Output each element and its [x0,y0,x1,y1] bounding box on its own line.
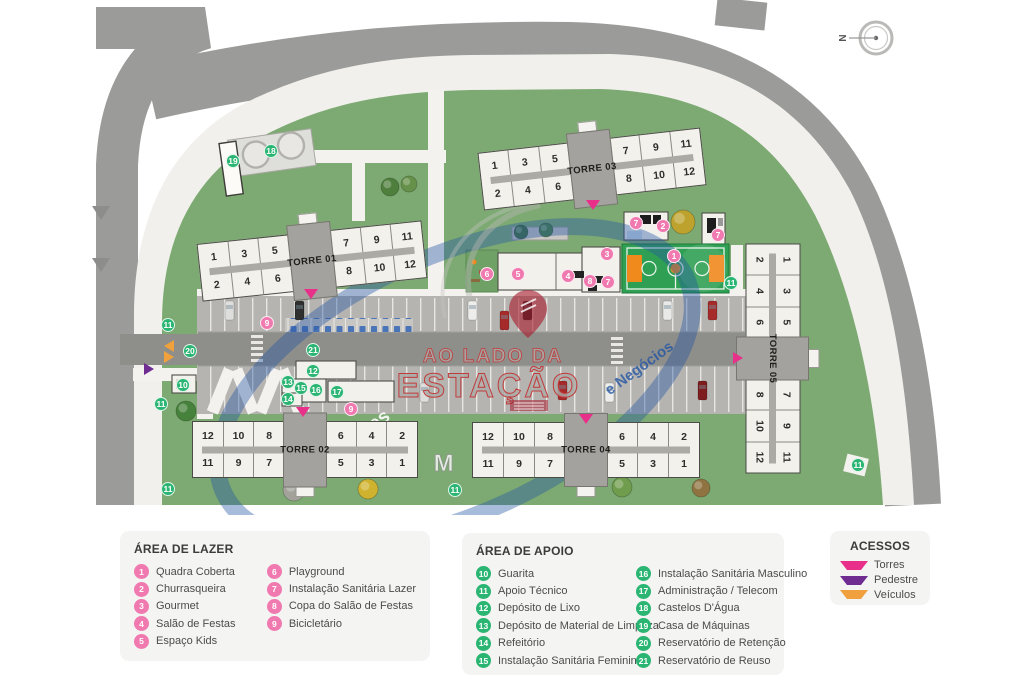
legend-item-label: Playground [289,566,345,578]
legend-item-label: Castelos D'Água [658,602,740,614]
legend-badge-7: 7 [267,582,282,597]
legend-item-label: Bicicletário [289,618,342,630]
legend-badge-14: 14 [476,636,491,651]
torres-triangle-icon [840,561,868,570]
legend-card-area-de-lazer: ÁREA DE LAZER 1Quadra Coberta2Churrasque… [120,531,430,661]
sports-court [622,244,729,293]
legend-item-label: Gourmet [156,600,199,612]
legend-badge-6: 6 [267,564,282,579]
legend-item-label: Salão de Festas [156,618,236,630]
legend-title-acessos: ACESSOS [840,539,920,553]
legend-badge-2: 2 [134,582,149,597]
legend-item-label: Pedestre [874,574,918,586]
legend-badge-3: 3 [134,599,149,614]
legend-item: 18Castelos D'Água [636,600,807,617]
legend-item-torres: Torres [840,558,920,573]
legend-item: 20Reservatório de Retenção [636,635,807,652]
pedestre-triangle-icon [840,576,868,585]
playground-area [466,250,498,292]
legend-badge-4: 4 [134,616,149,631]
legend-badge-20: 20 [636,636,651,651]
legend-item: 11Apoio Técnico [476,582,636,599]
legend-badge-13: 13 [476,618,491,633]
parking-lot [120,296,746,415]
legend-badge-5: 5 [134,634,149,649]
legend-item-label: Instalação Sanitária Feminino [498,655,643,667]
legend-item: 16Instalação Sanitária Masculino [636,565,807,582]
legend-item-label: Torres [874,559,905,571]
legend-item: 1Quadra Coberta [134,563,267,580]
legend-item-pedestre: Pedestre [840,573,920,588]
site-plan-base: N [0,0,1024,515]
site-plan-map: N AO LADO DA ESTAÇÃO IMÓVEIS Os Melhores… [0,0,1024,515]
legend-item-label: Administração / Telecom [658,585,778,597]
legend-item: 9Bicicletário [267,615,416,632]
legend-item: 15Instalação Sanitária Feminino [476,652,636,669]
legend-item: 6Playground [267,563,416,580]
legend-badge-1: 1 [134,564,149,579]
legend-item: 7Instalação Sanitária Lazer [267,580,416,597]
legend-item-label: Reservatório de Reuso [658,655,771,667]
legend-title-apoio: ÁREA DE APOIO [476,544,770,558]
legend-item-label: Refeitório [498,637,545,649]
legend-item: 17Administração / Telecom [636,582,807,599]
legend-item-label: Espaço Kids [156,635,217,647]
legend-item-label: Copa do Salão de Festas [289,600,413,612]
legend-item: 14Refeitório [476,635,636,652]
legend-badge-8: 8 [267,599,282,614]
legend-item-label: Instalação Sanitária Masculino [658,568,807,580]
legend-item-label: Veículos [874,589,916,601]
legend-badge-17: 17 [636,584,651,599]
bicycle-racks [285,318,413,332]
legend-item: 13Depósito de Material de Limpeza [476,617,636,634]
legend-item-label: Depósito de Material de Limpeza [498,620,659,632]
legend-badge-21: 21 [636,653,651,668]
compass-north-label: N [838,34,849,41]
legend-item: 5Espaço Kids [134,633,267,650]
legend-item: 8Copa do Salão de Festas [267,598,416,615]
legend-item-veiculos: Veículos [840,588,920,603]
legend-item-label: Guarita [498,568,534,580]
legend-badge-19: 19 [636,618,651,633]
legend-item-label: Apoio Técnico [498,585,568,597]
legend-badge-10: 10 [476,566,491,581]
legend-item-label: Depósito de Lixo [498,602,580,614]
legend-item: 12Depósito de Lixo [476,600,636,617]
veiculos-triangle-icon [840,590,868,599]
legend-card-area-de-apoio: ÁREA DE APOIO 10Guarita11Apoio Técnico12… [462,533,784,675]
legend-item: 2Churrasqueira [134,580,267,597]
legend-item: 21Reservatório de Reuso [636,652,807,669]
legend-item-label: Churrasqueira [156,583,226,595]
legend-badge-18: 18 [636,601,651,616]
legend-item: 3Gourmet [134,598,267,615]
legend-item-label: Casa de Máquinas [658,620,750,632]
legend-title-lazer: ÁREA DE LAZER [134,542,416,556]
site-plan-page: N AO LADO DA ESTAÇÃO IMÓVEIS Os Melhores… [0,0,1024,687]
legend-item-label: Quadra Coberta [156,566,235,578]
guard-house [172,375,196,393]
legend-item-label: Instalação Sanitária Lazer [289,583,416,595]
legend-item: 19Casa de Máquinas [636,617,807,634]
legend-badge-15: 15 [476,653,491,668]
legend-badge-12: 12 [476,601,491,616]
legend-item: 10Guarita [476,565,636,582]
legend-item: 4Salão de Festas [134,615,267,632]
legend-badge-16: 16 [636,566,651,581]
legend-card-acessos: ACESSOS TorresPedestreVeículos [830,531,930,605]
legend-item-label: Reservatório de Retenção [658,637,786,649]
legend-badge-11: 11 [476,584,491,599]
legend-badge-9: 9 [267,616,282,631]
